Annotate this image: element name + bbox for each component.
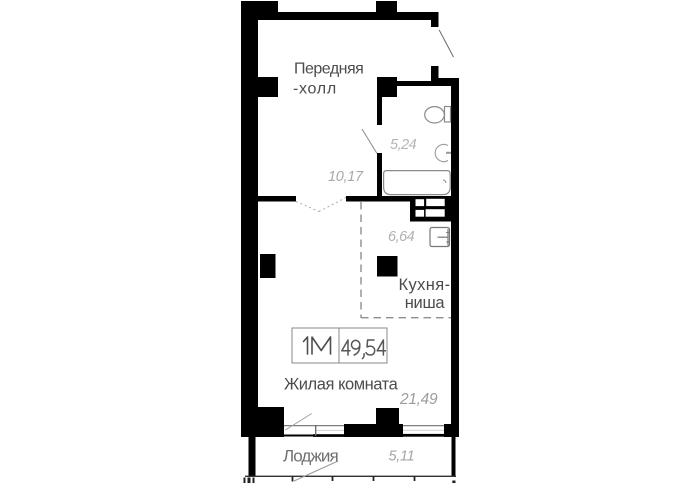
- svg-text:-холл: -холл: [293, 81, 337, 98]
- svg-text:5,24: 5,24: [390, 137, 417, 153]
- svg-text:Жилая комната: Жилая комната: [284, 376, 399, 394]
- svg-text:Кухня-: Кухня-: [398, 276, 450, 294]
- svg-text:Лоджия: Лоджия: [283, 447, 339, 466]
- svg-text:5,11: 5,11: [389, 449, 415, 465]
- svg-text:21,49: 21,49: [399, 391, 438, 408]
- svg-text:6,64: 6,64: [388, 229, 415, 245]
- svg-text:10,17: 10,17: [328, 169, 364, 185]
- svg-text:Передняя: Передняя: [294, 61, 363, 78]
- svg-text:ниша: ниша: [405, 294, 446, 312]
